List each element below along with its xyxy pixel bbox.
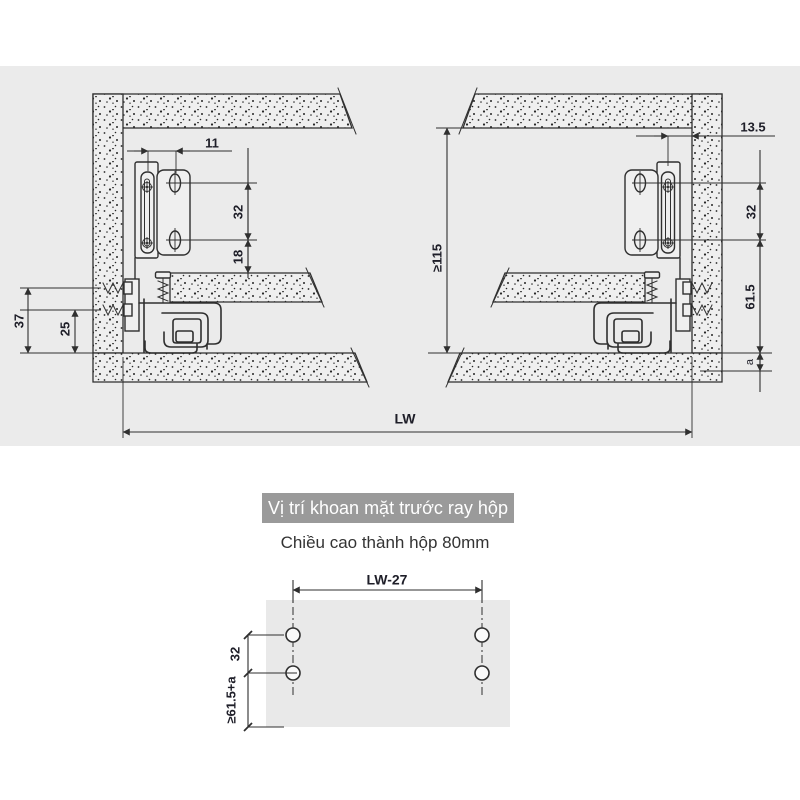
dim-label-13-5: 13.5 (740, 119, 765, 134)
mounting-bracket-right (625, 162, 680, 279)
bottom-panel (448, 353, 722, 382)
drill-hole (475, 666, 489, 680)
cross-section-drawing: 11 32 18 37 (0, 66, 800, 446)
dim-label-32-right: 32 (743, 205, 758, 219)
right-view: 13.5 ≥115 32 61. (428, 88, 775, 392)
dim-label-37: 37 (11, 314, 26, 328)
vertical-screw (156, 272, 171, 302)
left-view: 11 32 18 37 (11, 88, 369, 387)
bottom-panel (93, 353, 367, 382)
dim-label-115: ≥115 (429, 244, 444, 272)
dim-label-lw27: LW-27 (367, 572, 408, 588)
drill-position-diagram: LW-27 32 ≥61.5+a (0, 560, 800, 800)
dim-label-a: a (744, 358, 756, 365)
top-panel (93, 94, 352, 128)
dim-label-32-left: 32 (230, 205, 245, 219)
top-panel (463, 94, 722, 128)
dim-label-11: 11 (205, 135, 219, 150)
dim-label-lw: LW (395, 411, 417, 427)
drawer-bottom-panel (170, 273, 322, 302)
mounting-bracket-left (135, 162, 190, 279)
dim-label-61-5-a: ≥61.5+a (223, 676, 238, 724)
vertical-screw (645, 272, 660, 302)
technical-drawing-page: 11 32 18 37 (0, 0, 800, 800)
dim-label-61-5: 61.5 (742, 284, 757, 309)
section-subtitle: Chiều cao thành hộp 80mm (235, 532, 535, 554)
section-title: Vị trí khoan mặt trước ray hộp (262, 493, 514, 523)
cross-section-band: 11 32 18 37 (0, 66, 800, 446)
drill-position-section: LW-27 32 ≥61.5+a (0, 560, 800, 800)
drawer-front-panel (266, 600, 510, 727)
dimensions-right: 13.5 ≥115 32 61. (428, 119, 775, 392)
dim-label-25: 25 (57, 322, 72, 336)
drawer-bottom-panel (493, 273, 645, 302)
dim-label-18: 18 (230, 250, 245, 264)
drill-hole (286, 628, 300, 642)
dim-label-32-bottom: 32 (227, 647, 242, 661)
drill-hole (475, 628, 489, 642)
